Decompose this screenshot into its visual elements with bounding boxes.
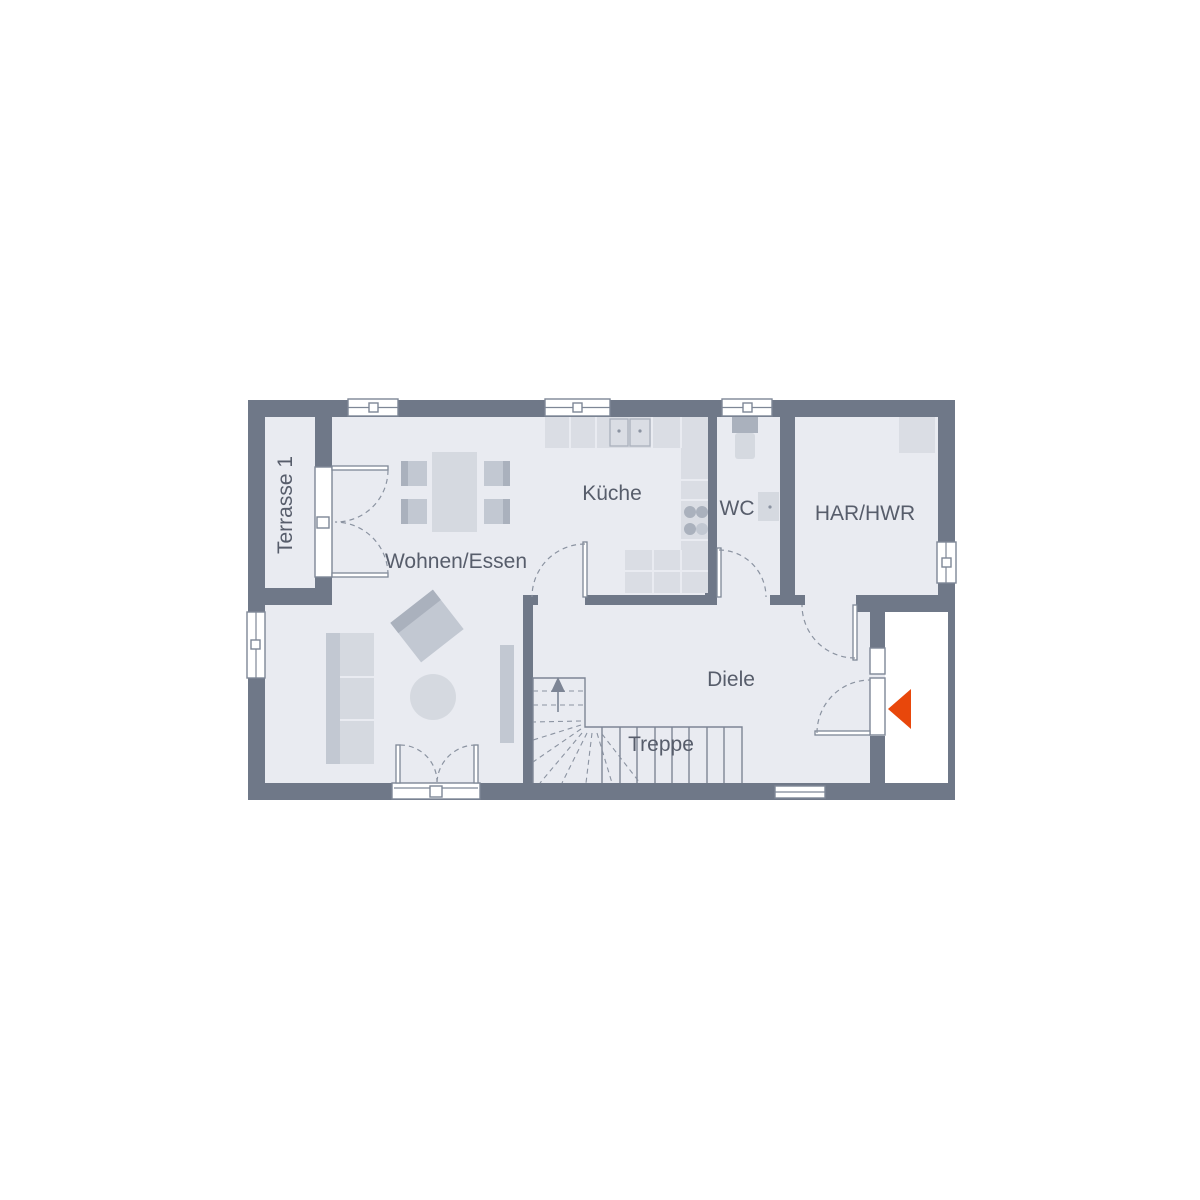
toilet [732,417,758,459]
room-label-kueche: Küche [582,482,642,505]
window-right-har [937,542,956,583]
sideboard [500,645,514,743]
entrance-recess [885,612,948,783]
washbasin [758,492,779,521]
window-top-living [348,399,398,416]
sofa [326,633,374,764]
room-label-wohnen-essen: Wohnen/Essen [385,550,527,573]
window-top-kitchen [545,399,610,416]
room-label-treppe: Treppe [628,733,694,756]
room-label-diele: Diele [707,668,755,691]
window-top-wc [722,399,772,416]
window-bottom-diele [775,786,825,798]
dining-table [432,452,477,532]
room-label-terrasse: Terrasse 1 [274,456,297,554]
coffee-table [410,674,456,720]
floor-plan: Terrasse 1 Wohnen/Essen Küche WC HAR/HWR… [0,0,1200,1200]
window-left-living [247,612,265,678]
room-label-har-hwr: HAR/HWR [815,502,915,525]
har-equipment [899,417,935,453]
room-label-wc: WC [720,497,755,520]
